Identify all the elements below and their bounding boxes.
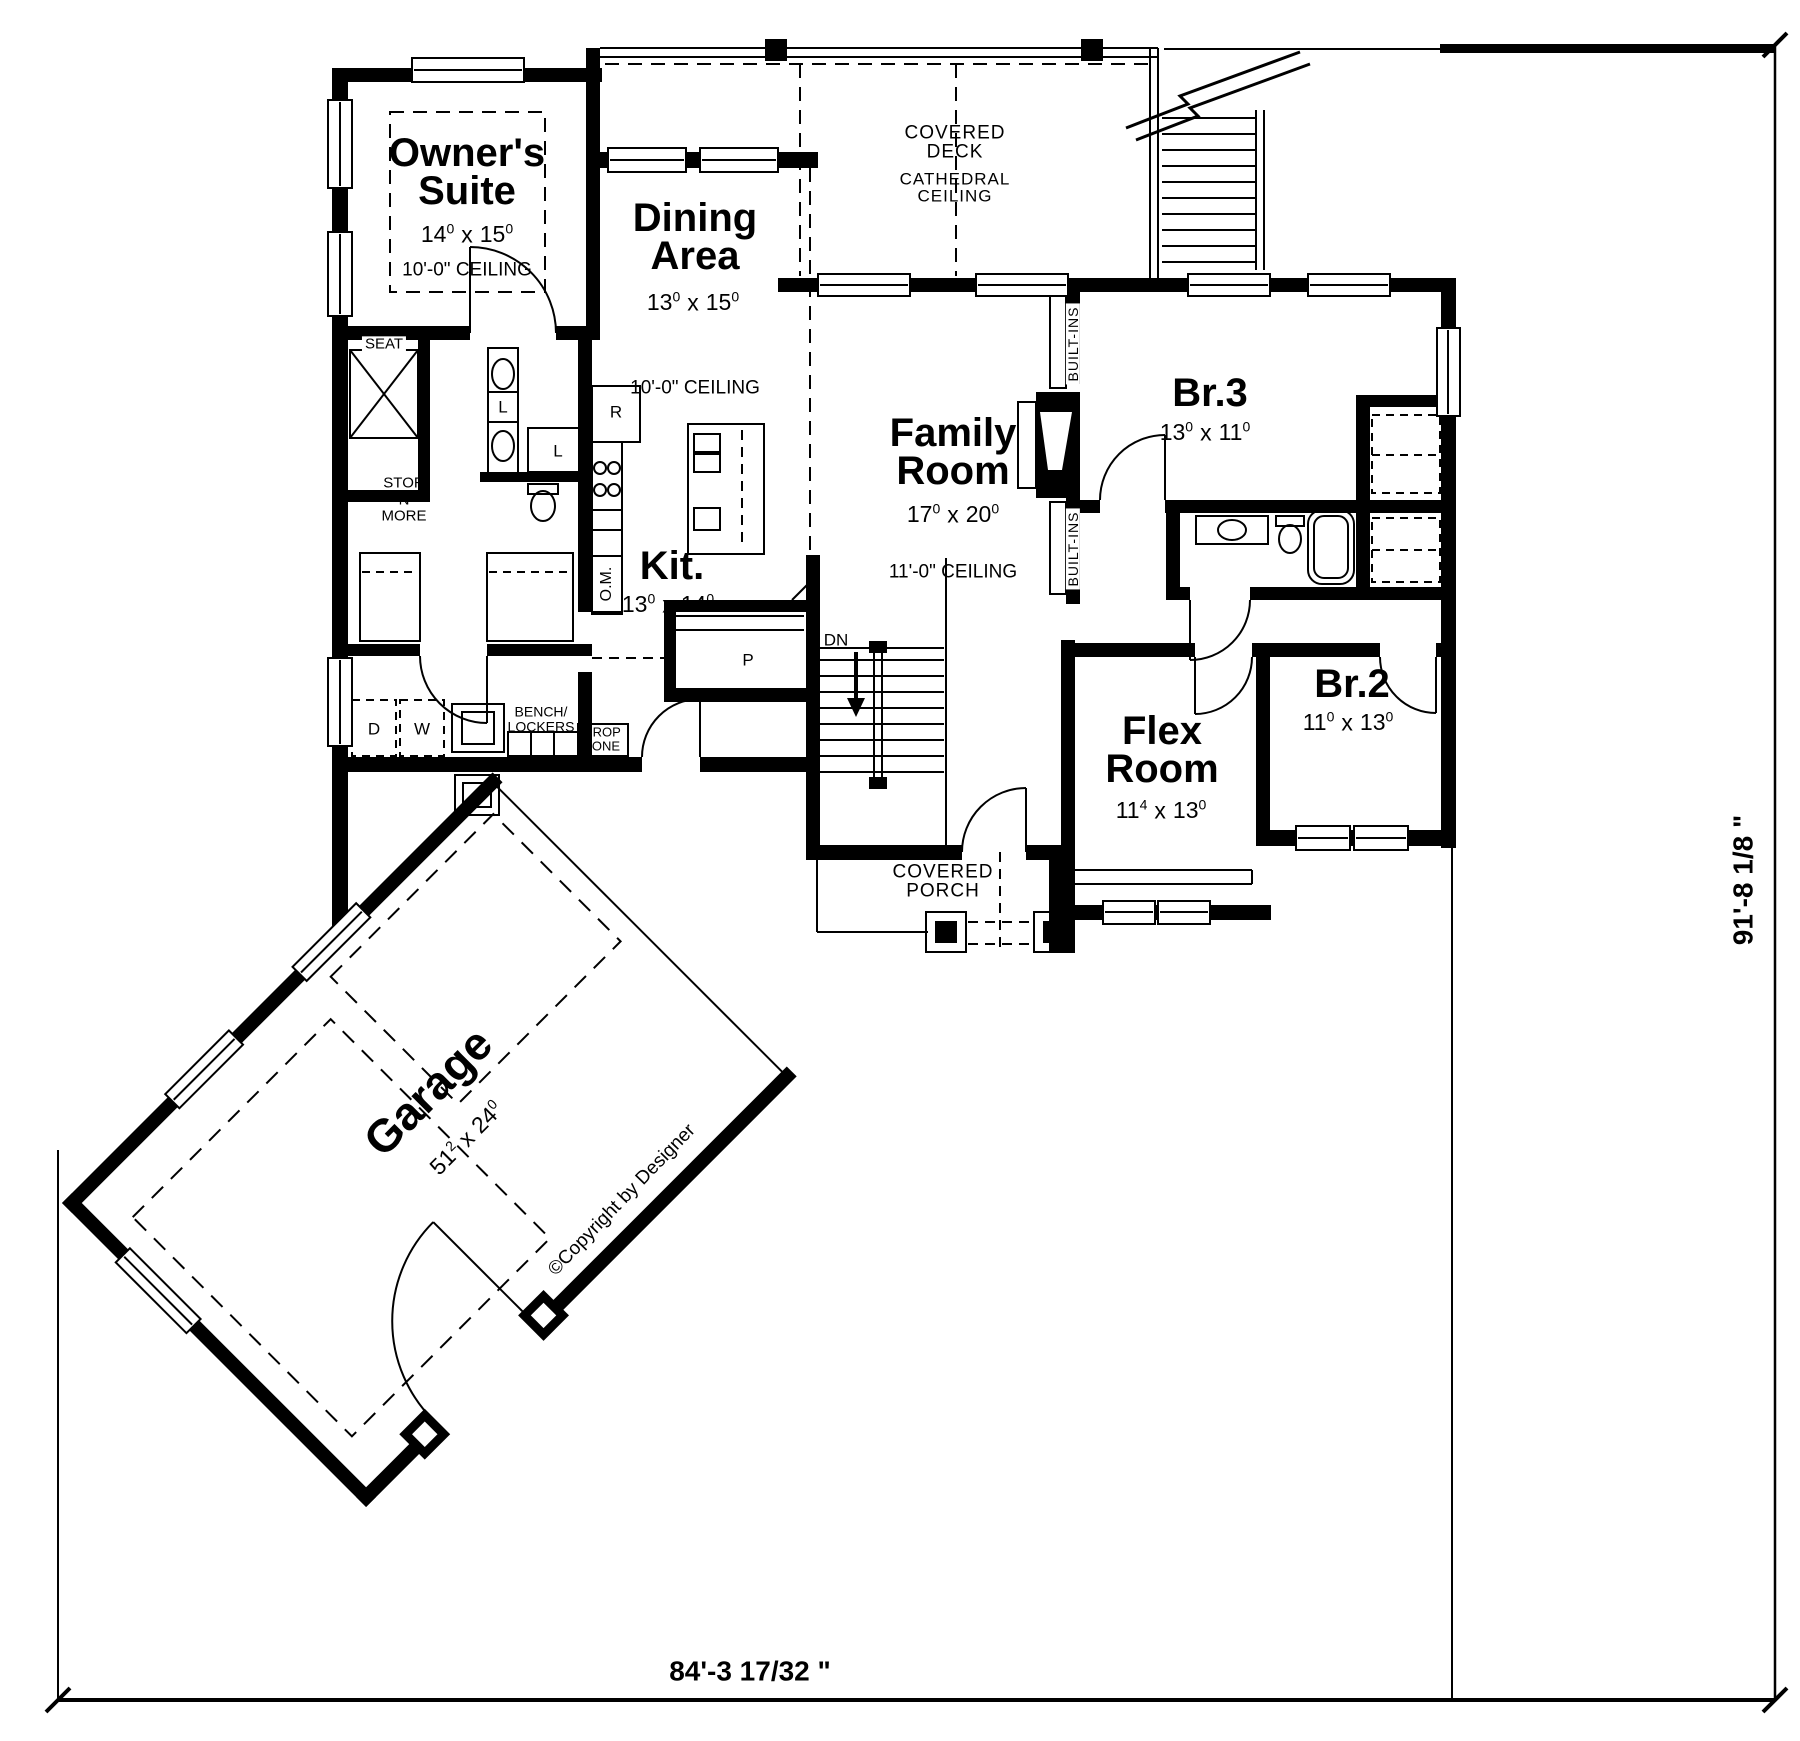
room-label-covered-deck: COVERED DECK CATHEDRAL CEILING <box>900 123 1011 204</box>
room-label-family: FamilyRoom <box>890 414 1017 490</box>
toilet-tank <box>528 484 558 494</box>
room-size-br3: 130x110 <box>1160 419 1251 444</box>
ceiling-note-dining: 10'-0" CEILING <box>630 378 760 397</box>
room-label-br3: Br.3 <box>1172 374 1248 412</box>
room-size-dining: 130x150 <box>647 289 739 314</box>
room-label-covered-porch: COVERED PORCH <box>893 863 994 902</box>
refrigerator-label: R <box>610 403 622 420</box>
room-label-flex: FlexRoom <box>1105 712 1218 788</box>
bench-lockers-label: BENCH/LOCKERS <box>508 704 575 733</box>
room-size-flex: 114x130 <box>1116 797 1207 822</box>
kitchen-island <box>688 424 764 554</box>
room-size-kitchen: 130x140 <box>622 591 714 616</box>
room-size-owners-suite: 140x150 <box>421 221 513 246</box>
owners-bath-fixtures <box>488 348 590 521</box>
linen-label: L <box>553 442 562 459</box>
bench <box>508 732 578 756</box>
island-sink <box>694 434 720 452</box>
seat-label: SEAT <box>362 336 406 351</box>
oven-microwave-label: O.M. <box>599 567 615 602</box>
ceiling-note-owners-suite: 10'-0" CEILING <box>402 260 532 279</box>
ceiling-note-family: 11'-0" CEILING <box>889 562 1017 581</box>
stairs-down-label: DN <box>824 631 849 648</box>
room-size-br2: 110x130 <box>1303 709 1394 734</box>
built-ins-label: BUILT-INS <box>1066 509 1080 590</box>
pantry-label: P <box>742 651 753 668</box>
outdoor-stairs <box>1126 52 1310 270</box>
toilet-bowl <box>531 491 555 521</box>
floor-plan-canvas: Owner'sSuite 140x150 10'-0" CEILING Dini… <box>0 0 1800 1741</box>
room-label-br2: Br.2 <box>1314 665 1390 703</box>
drop-zone-label: DROPZONE <box>583 726 621 755</box>
room-label-owners-suite: Owner'sSuite <box>389 134 545 210</box>
room-label-dining: DiningArea <box>633 199 757 275</box>
room-size-family: 170x200 <box>907 501 999 526</box>
dryer-label: D <box>368 720 380 737</box>
linen-label: L <box>498 398 507 415</box>
dimension-bottom: 84'-3 17/32 " <box>669 1658 831 1687</box>
room-label-kitchen: Kit. <box>640 547 704 585</box>
built-ins-label: BUILT-INS <box>1066 304 1080 385</box>
stor-n-more-label: STOR-N-MORE <box>382 475 427 525</box>
indoor-stairs <box>820 558 946 845</box>
washer-label: W <box>414 720 430 737</box>
dimension-right: 91'-8 1/8 " <box>1730 815 1759 945</box>
